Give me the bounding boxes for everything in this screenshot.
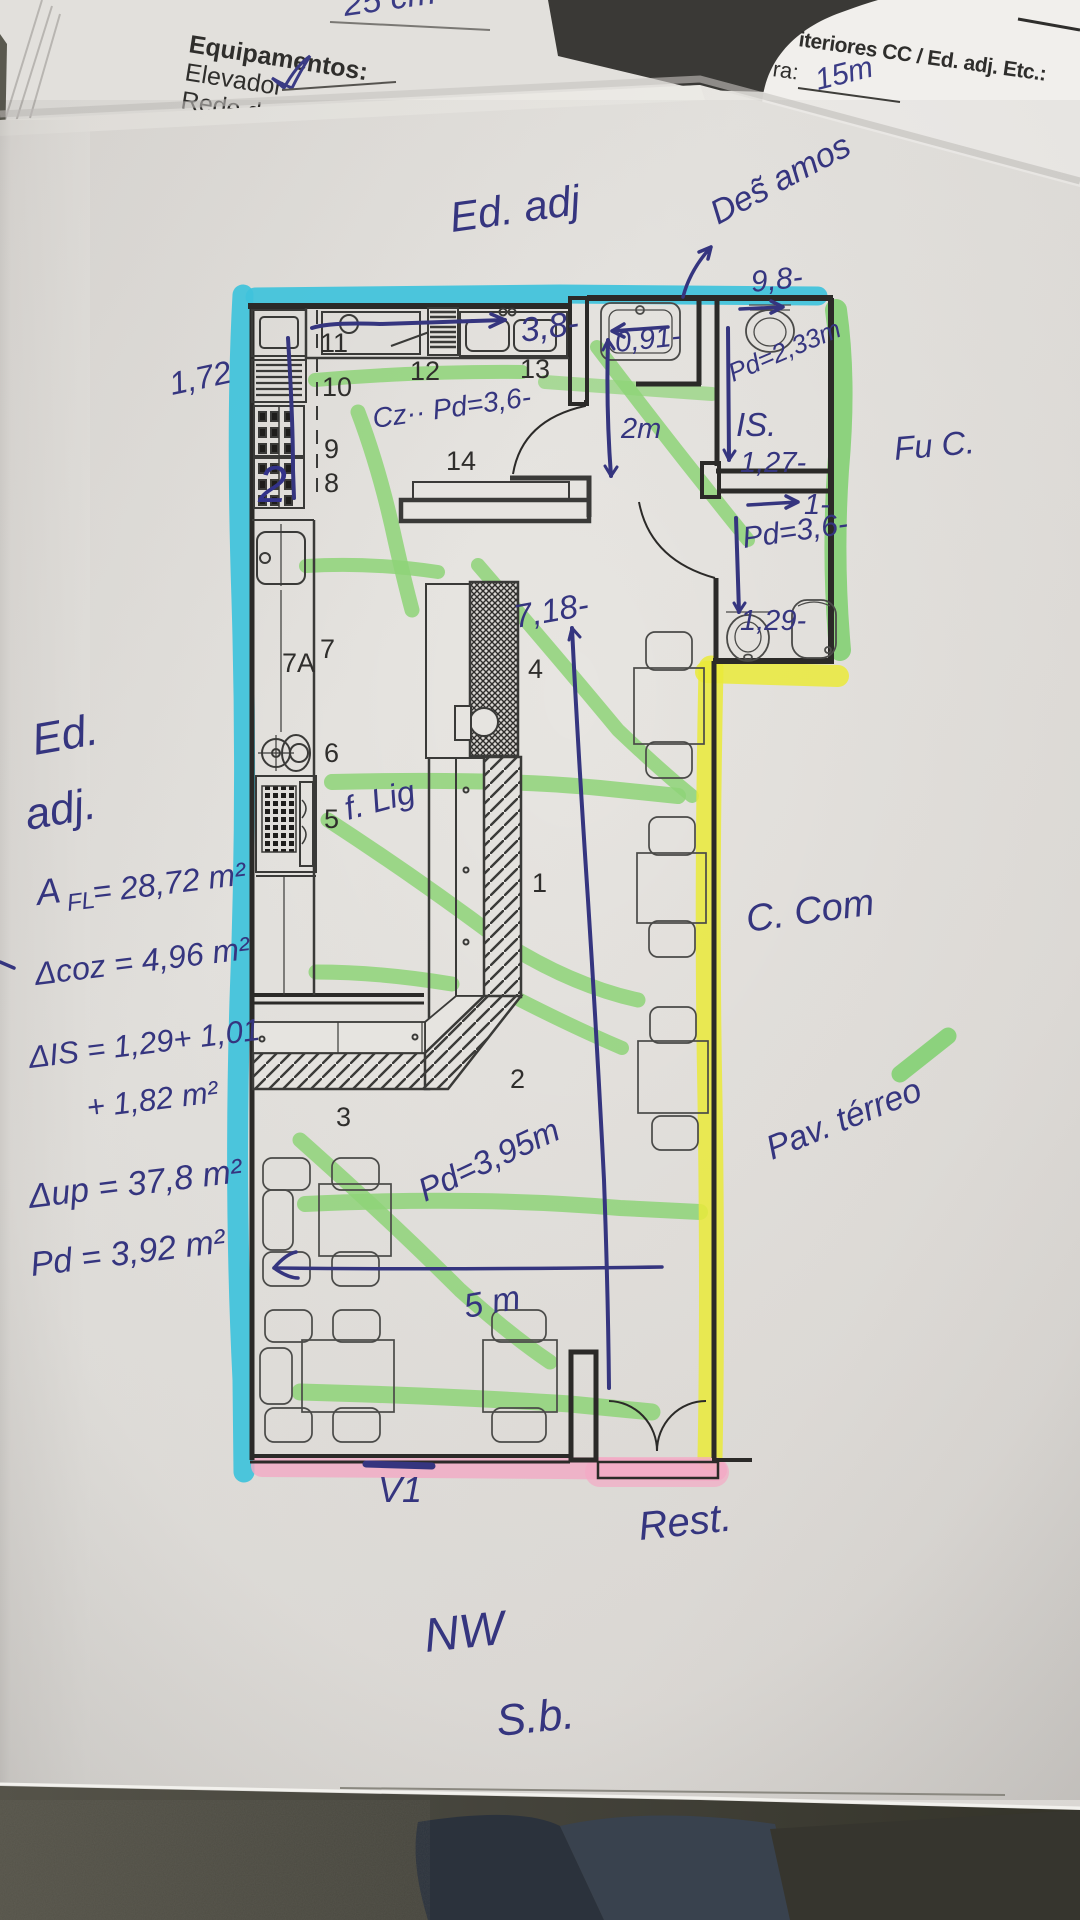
svg-text:3,8-: 3,8- bbox=[518, 304, 581, 350]
svg-text:14: 14 bbox=[446, 446, 476, 476]
svg-text:6: 6 bbox=[324, 738, 339, 768]
svg-text:S.b.: S.b. bbox=[494, 1689, 577, 1746]
svg-text:9: 9 bbox=[324, 434, 339, 464]
svg-text:1,27-: 1,27- bbox=[740, 447, 806, 479]
svg-text:IS.: IS. bbox=[736, 406, 776, 443]
svg-text:8: 8 bbox=[324, 468, 339, 498]
svg-text:Fu C.: Fu C. bbox=[892, 423, 976, 467]
svg-text:5: 5 bbox=[324, 804, 339, 834]
svg-text:12: 12 bbox=[410, 356, 440, 386]
svg-text:10: 10 bbox=[322, 372, 352, 402]
svg-text:9,8-: 9,8- bbox=[749, 261, 804, 299]
svg-text:1: 1 bbox=[532, 868, 547, 898]
svg-text:2m: 2m bbox=[620, 413, 661, 445]
svg-text:7A: 7A bbox=[282, 648, 315, 678]
svg-text:7: 7 bbox=[320, 634, 335, 664]
svg-text:1,29-: 1,29- bbox=[740, 605, 806, 637]
svg-text:ra:: ra: bbox=[771, 56, 800, 84]
svg-text:3: 3 bbox=[336, 1102, 351, 1132]
svg-text:2: 2 bbox=[510, 1064, 525, 1094]
svg-text:4: 4 bbox=[528, 654, 543, 684]
svg-text:11: 11 bbox=[320, 328, 348, 358]
svg-text:NW: NW bbox=[422, 1601, 512, 1663]
svg-text:2: 2 bbox=[257, 456, 287, 514]
svg-text:13: 13 bbox=[520, 354, 550, 384]
svg-text:V1: V1 bbox=[378, 1469, 422, 1510]
